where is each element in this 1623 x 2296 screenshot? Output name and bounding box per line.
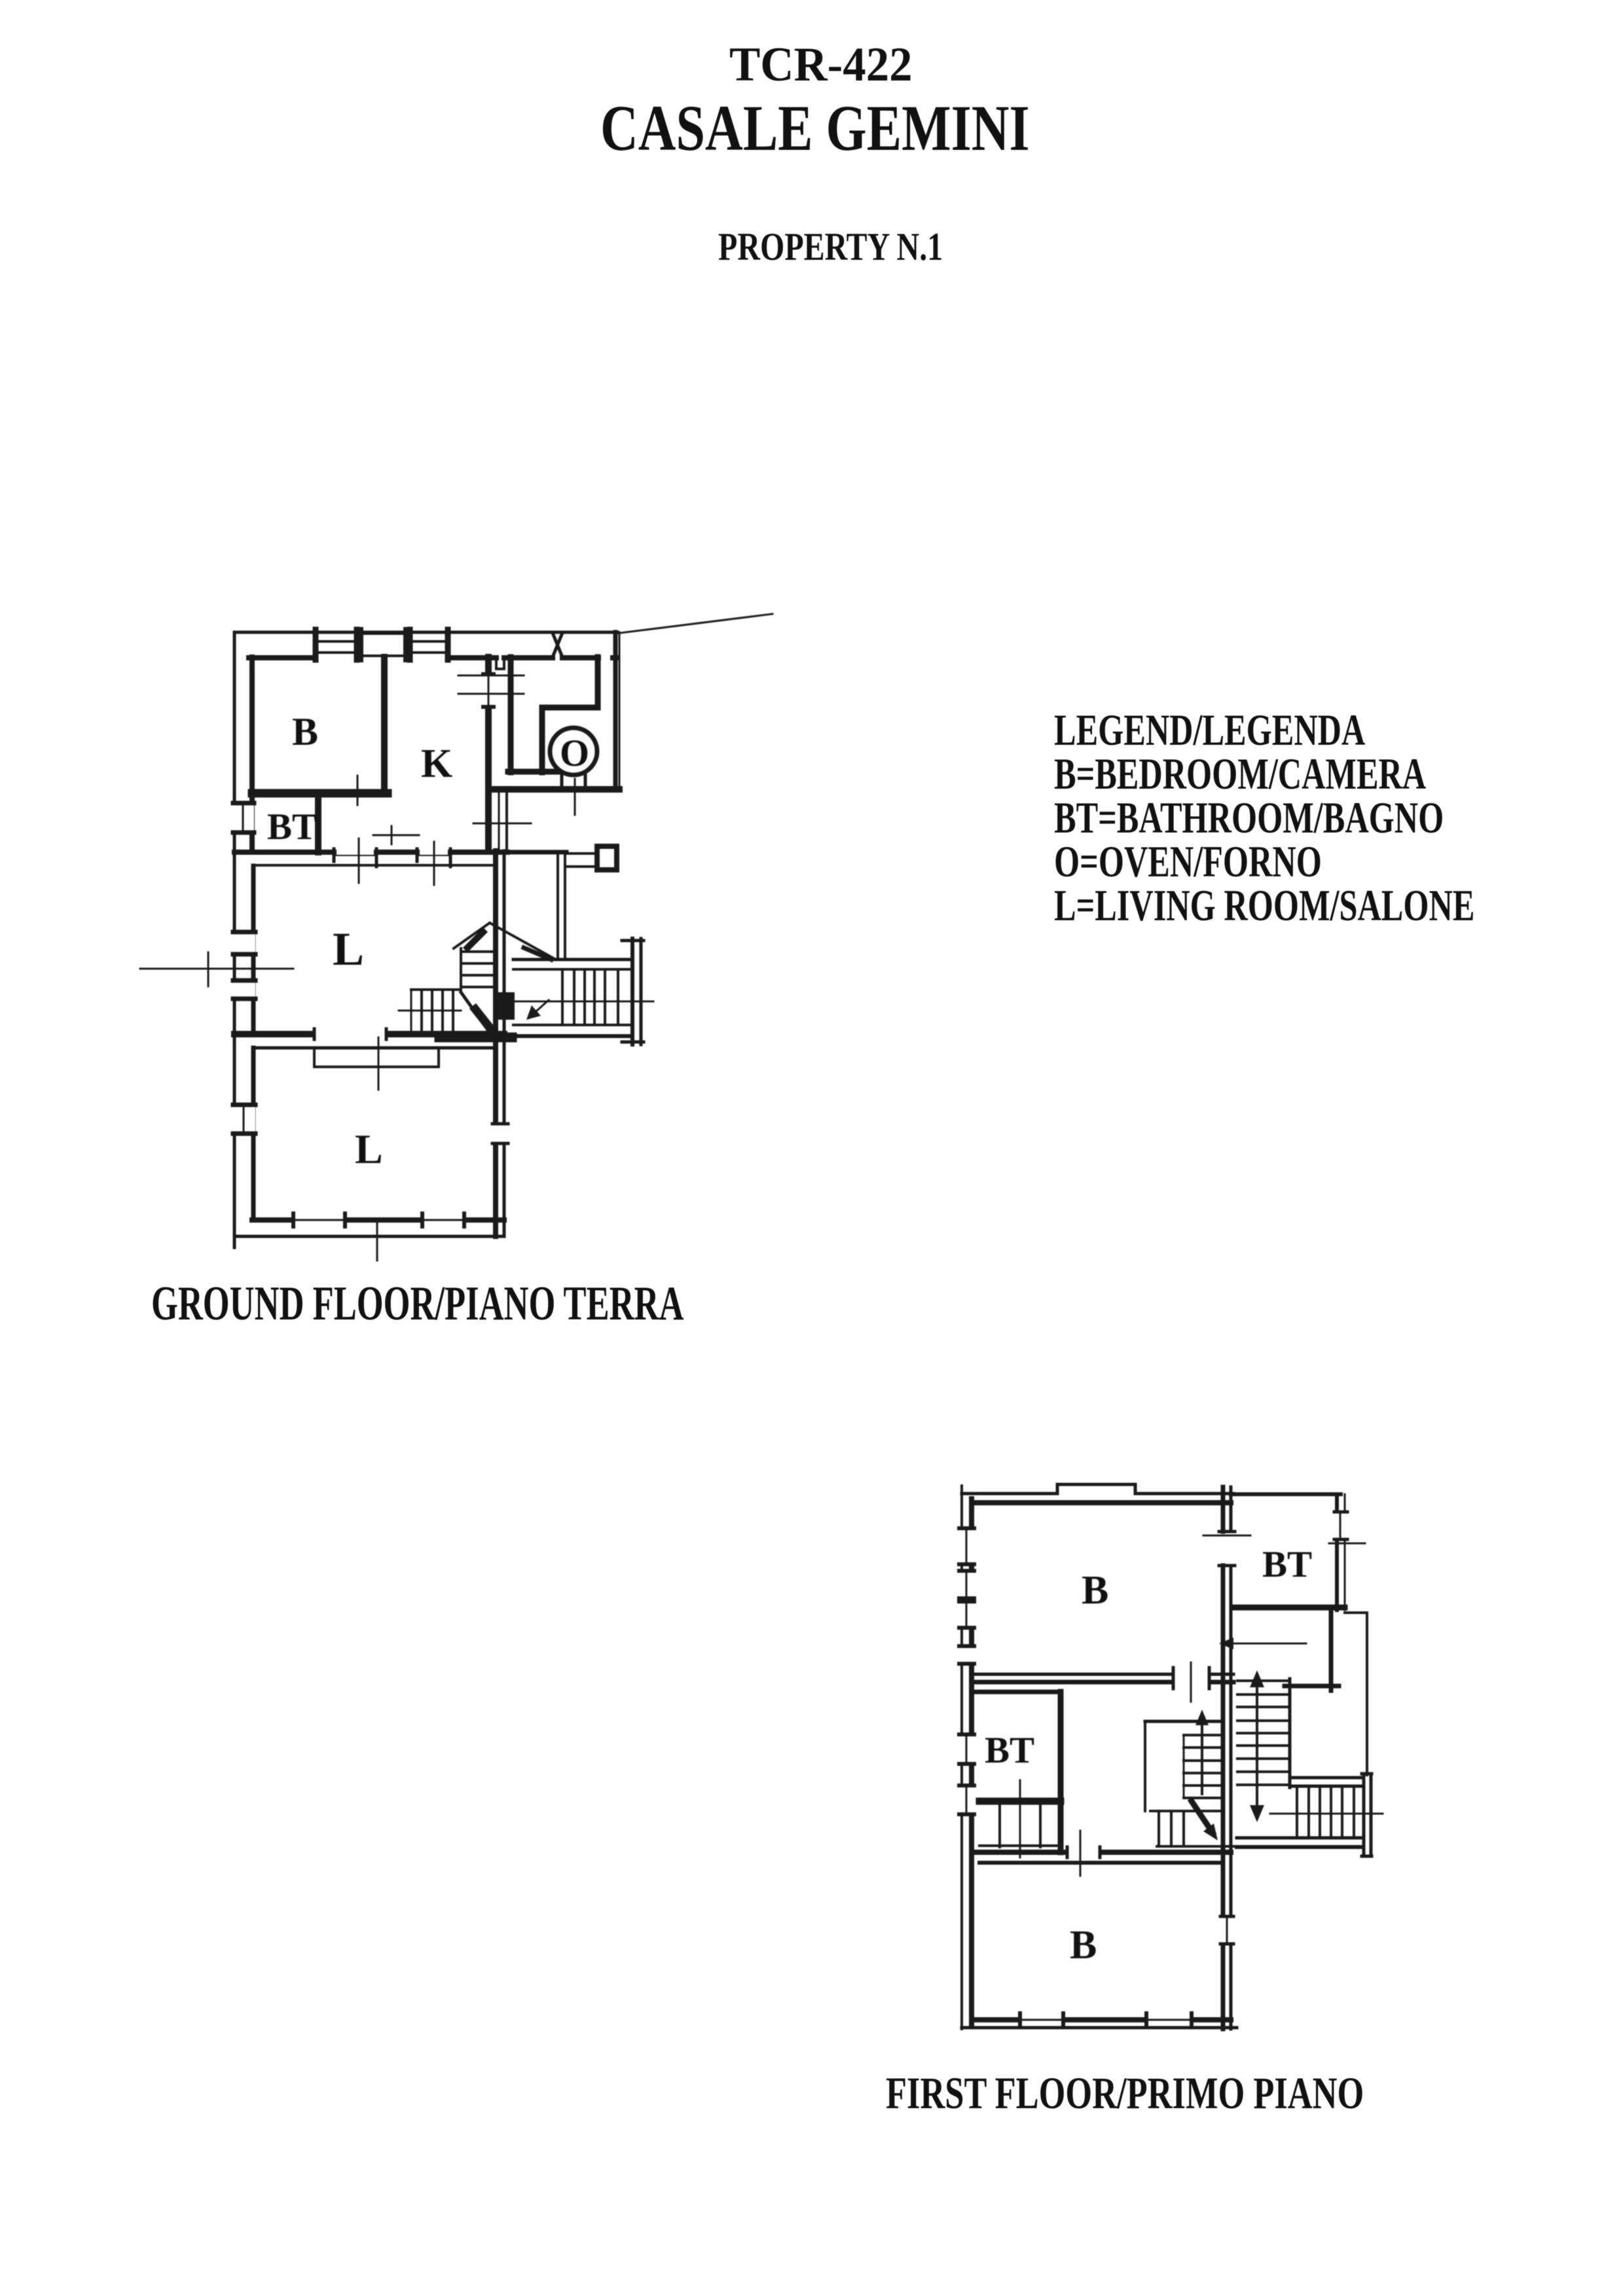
svg-text:L: L [355,1126,383,1172]
svg-text:BT: BT [267,806,317,848]
svg-text:K: K [421,742,452,786]
svg-text:B: B [1070,1923,1097,1967]
svg-text:B: B [292,710,318,753]
svg-text:BT: BT [1262,1544,1312,1585]
svg-text:O: O [560,732,589,774]
svg-text:B: B [1082,1568,1108,1613]
svg-text:L: L [333,923,364,975]
svg-text:BT: BT [985,1730,1034,1771]
